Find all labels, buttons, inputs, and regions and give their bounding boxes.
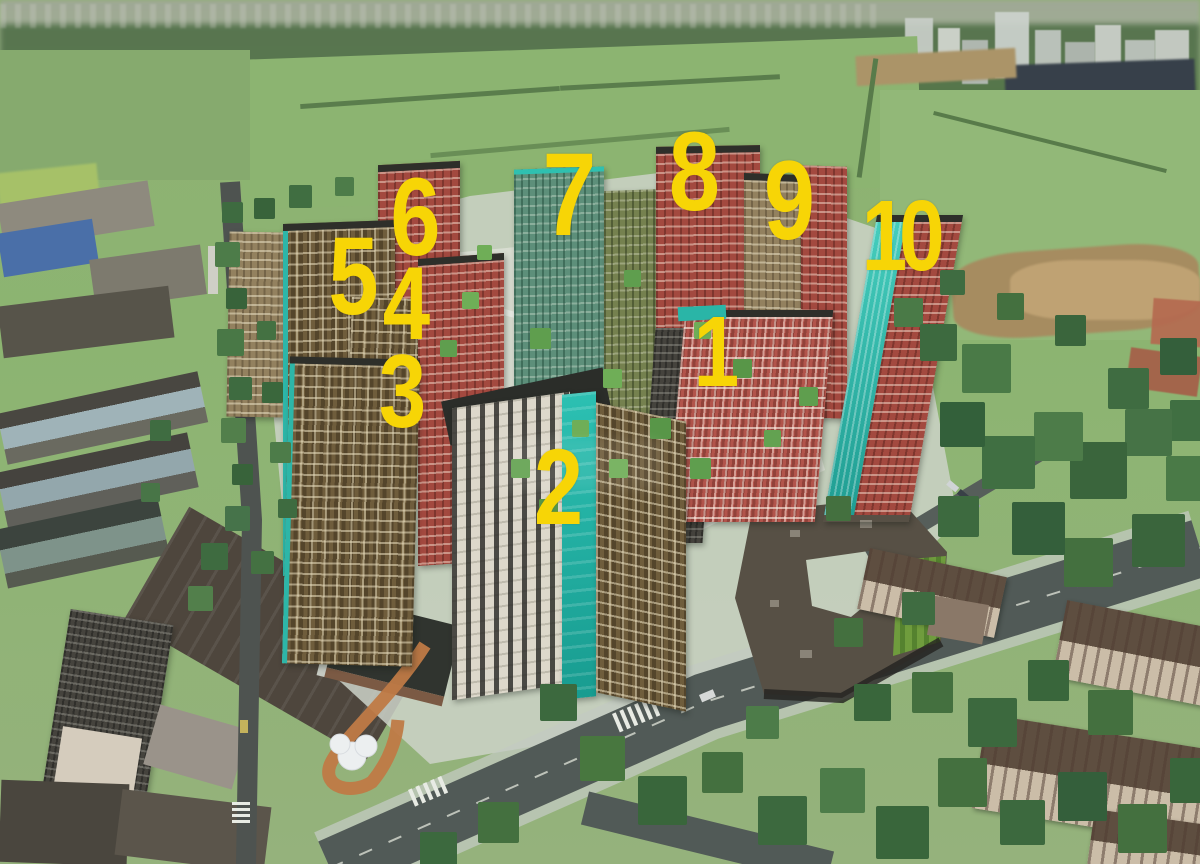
building-9-label: 9: [764, 145, 810, 257]
building-6-label: 6: [390, 163, 435, 273]
aerial-photo-residential-complex: 1 2 3 4 5 6 7 8 9 10: [0, 0, 1200, 864]
building-1-label: 1: [694, 302, 735, 402]
tower-1: [667, 310, 834, 522]
building-2-label: 2: [534, 433, 578, 541]
tower-5-rear: [226, 232, 285, 418]
building-8-label: 8: [669, 116, 715, 228]
building-10-label: 10: [862, 186, 937, 286]
branch-road: [585, 808, 830, 864]
building-7-label: 7: [543, 136, 592, 254]
trees-courtyard: [0, 0, 1, 1]
building-5-label: 5: [328, 222, 373, 332]
